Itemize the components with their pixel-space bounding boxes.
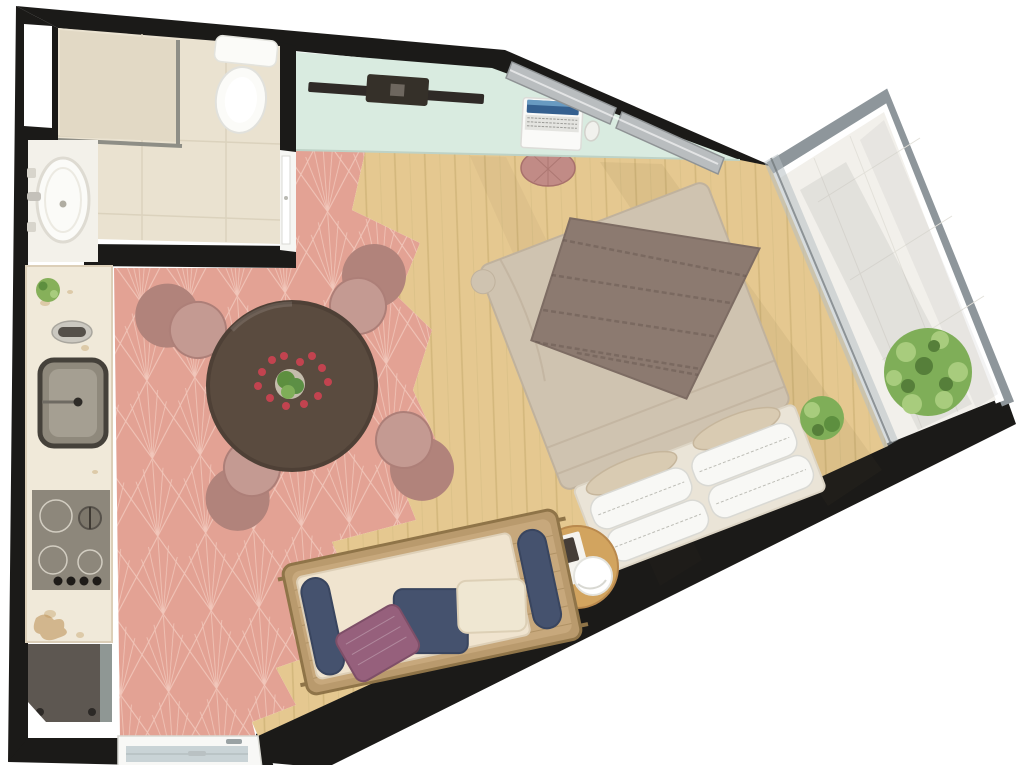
bathroom-door [280,150,296,252]
shower-floor [60,30,178,142]
bathroom [24,24,296,262]
laptop-keyboard [525,115,580,133]
tub-faucet [27,192,41,201]
tv-detail [390,84,405,97]
faucet-handle [58,327,86,337]
tub-drain [60,201,67,208]
leaf-shadow [824,416,840,432]
kitchen-plant-leaf-2 [50,290,58,298]
kitchen-plant-leaf [39,282,48,291]
centerpiece-greens-3 [281,385,295,399]
floor-plan-stage [0,0,1024,765]
kitchen-plant-foliage [36,278,60,302]
cooktop [32,490,110,590]
sink-drain [74,398,83,407]
entrance-door-handle [226,739,242,744]
kitchen [26,266,112,722]
kitchen-appliance [28,644,112,722]
appliance-door-edge [100,644,112,722]
leaf-shadow-2 [812,424,824,436]
kitchen-sink [40,360,106,446]
bathtub-vanity [27,140,98,262]
kitchen-faucet [52,321,92,343]
balcony-bush [884,328,972,416]
wall-bathroom-right [280,42,296,152]
appliance-foot-2 [88,708,96,716]
kitchen-plant [36,278,60,302]
cream-pillow [457,579,527,633]
bathroom-door-handle [284,196,288,200]
indoor-plant [800,396,844,440]
entrance-door [118,736,262,765]
entrance-door-handle-2 [188,751,206,756]
toilet-tank [214,35,278,67]
floor-plan [0,0,1024,765]
sphere-lamp [574,557,612,595]
leaf-highlight [804,402,820,418]
wall-bathroom-bottom [84,244,296,268]
tap-hot [27,168,36,178]
tap-cold [27,222,36,232]
bathroom-window [24,24,52,128]
